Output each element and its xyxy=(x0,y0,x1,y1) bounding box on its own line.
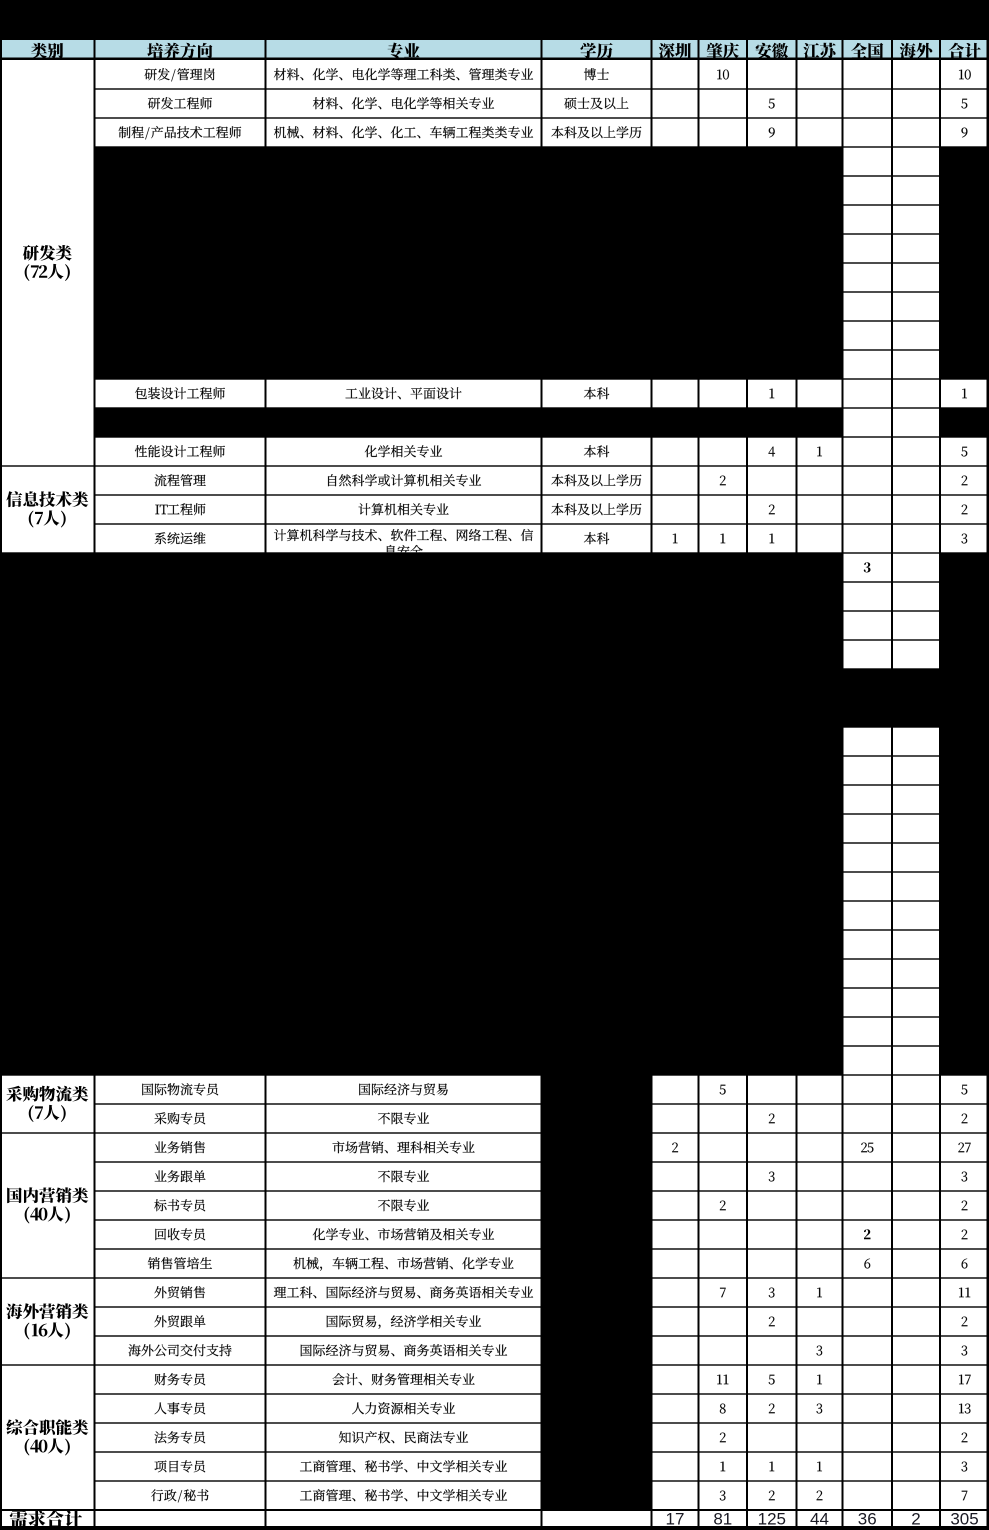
svg-text:125: 125 xyxy=(758,1510,786,1529)
svg-text:17: 17 xyxy=(666,1510,685,1529)
svg-text:2: 2 xyxy=(911,1510,920,1529)
svg-text:305: 305 xyxy=(950,1510,978,1529)
svg-text:36: 36 xyxy=(858,1510,877,1529)
svg-text:44: 44 xyxy=(810,1510,829,1529)
svg-text:81: 81 xyxy=(713,1510,732,1529)
